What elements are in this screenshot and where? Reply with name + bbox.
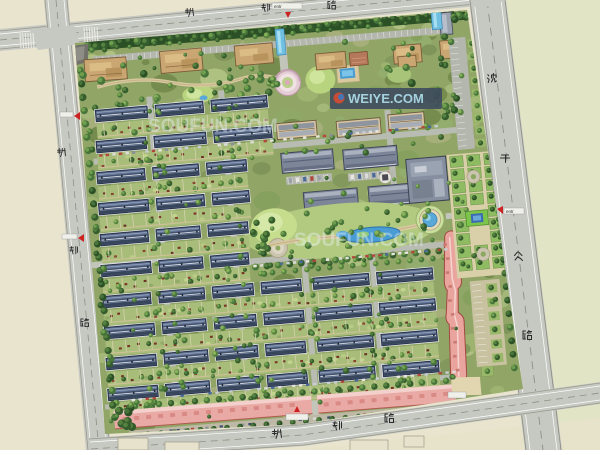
svg-text:WEIYE.COM: WEIYE.COM xyxy=(348,91,424,106)
svg-text:SOUFUN.COM: SOUFUN.COM xyxy=(294,230,424,251)
svg-text:entr: entr xyxy=(274,4,282,9)
svg-text:entr: entr xyxy=(506,209,514,214)
svg-text:SOUFUN.COM: SOUFUN.COM xyxy=(148,116,278,137)
